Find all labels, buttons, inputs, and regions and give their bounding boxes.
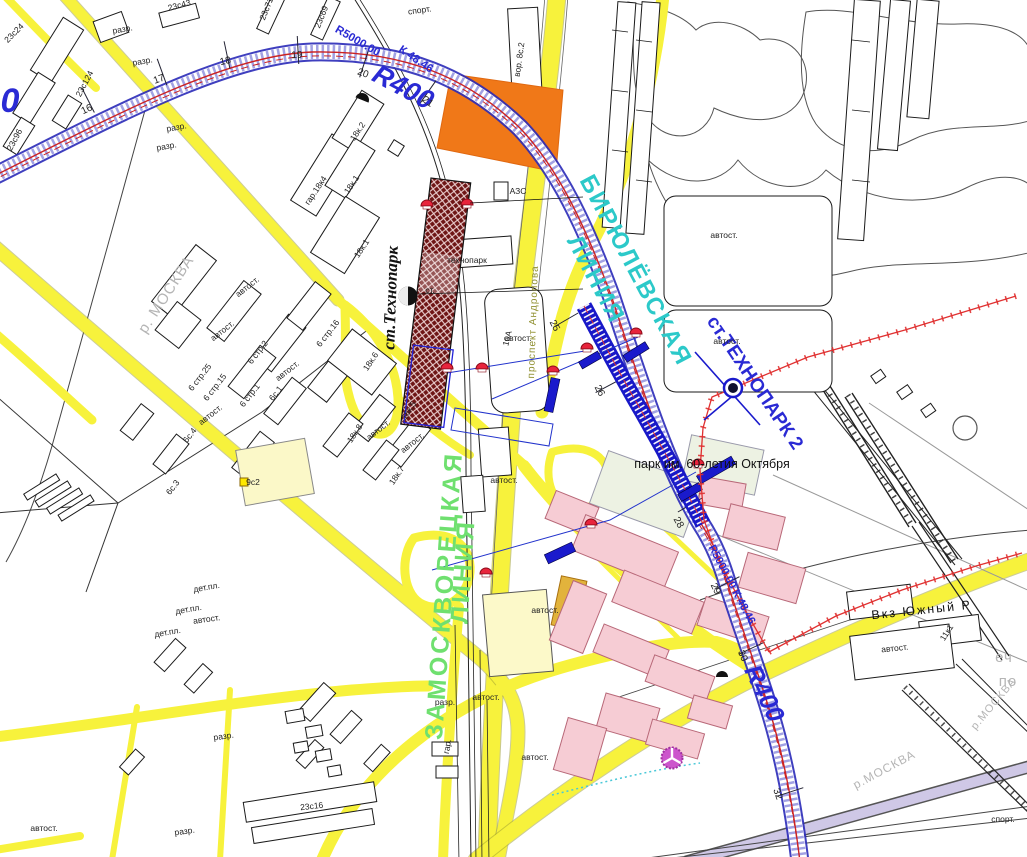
pier-rows bbox=[24, 464, 94, 530]
chainage-26: 26 bbox=[592, 383, 607, 398]
label-autost: автост. bbox=[30, 823, 57, 833]
building-label: разр. bbox=[213, 730, 235, 743]
building-label: 6 стр.16 bbox=[314, 317, 342, 348]
building-label: дет.пл. bbox=[174, 602, 202, 616]
label-autost: автост. bbox=[490, 475, 517, 485]
fountain-icon bbox=[953, 416, 977, 440]
building-label: спорт. bbox=[991, 814, 1014, 824]
station-abbr-label: ст. bbox=[425, 285, 435, 295]
chainage-16: 16 bbox=[80, 102, 95, 117]
building-label: 18к.7 bbox=[387, 464, 407, 487]
map-canvas: БИРЮЛЁВСКАЯ ЛИНИЯ ЗАМОСКВОРЕЦКАЯ ЛИНИЯ с… bbox=[0, 0, 1027, 857]
site-plan-map: БИРЮЛЁВСКАЯ ЛИНИЯ ЗАМОСКВОРЕЦКАЯ ЛИНИЯ с… bbox=[0, 0, 1027, 857]
chainage-20: 20 bbox=[356, 67, 371, 81]
building-label: разр. bbox=[174, 825, 196, 838]
landmark-circle-icon bbox=[662, 748, 683, 769]
place-label-technopark-bldg: технопарк bbox=[447, 255, 487, 265]
watermark-fragment-1: еч bbox=[995, 649, 1013, 666]
radius-label-cutoff: 0 bbox=[1, 82, 20, 120]
building-label: спорт. bbox=[407, 3, 432, 16]
building-label: дет.пл. bbox=[153, 625, 181, 639]
label-autost: автост. bbox=[192, 612, 220, 626]
building-label: разр. bbox=[112, 22, 134, 35]
label-autost: автост. bbox=[472, 692, 499, 702]
label-autost: автост. bbox=[531, 605, 558, 615]
label-autost: автост. bbox=[713, 336, 740, 346]
label-autost: автост. bbox=[521, 752, 548, 762]
building-label: 9с2 bbox=[246, 477, 260, 487]
building-label: 6с.3 bbox=[164, 478, 182, 497]
place-label-azs: АЗС bbox=[510, 186, 527, 196]
building-label: разр. bbox=[132, 54, 154, 67]
building-label: 23с24 bbox=[2, 21, 26, 45]
building-label: разр. bbox=[435, 697, 455, 707]
watermark-moskva-river-3: р.МОСКВА bbox=[969, 676, 1019, 732]
place-label-park: парк им. 60-летия Октября bbox=[634, 457, 790, 471]
station-label-technopark: ст.Технопарк bbox=[379, 245, 402, 350]
chainage-19: 19 bbox=[291, 50, 303, 62]
watermark-moskva-river-2: р.МОСКВА bbox=[851, 747, 918, 792]
chainage-18: 18 bbox=[219, 55, 233, 68]
building-label: разр. bbox=[156, 139, 178, 152]
label-autost: автост. bbox=[710, 230, 737, 240]
line-label-zamoskvoretskaya-2: ЛИНИЯ bbox=[445, 518, 480, 624]
building-label: дет.пл. bbox=[192, 580, 220, 594]
